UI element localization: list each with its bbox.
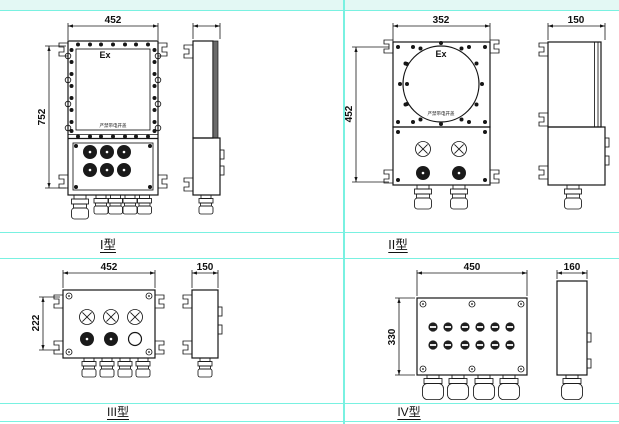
type1-buttons [83, 145, 131, 177]
type1-height-dimension: 752 [37, 46, 66, 188]
label-band-2: III型 IV型 [0, 403, 619, 422]
type4-height-value: 330 [387, 328, 398, 345]
type4-height-dimension: 330 [387, 298, 415, 375]
type3-depth-dimension: 150 [192, 262, 218, 288]
type1-ex-mark: Ex [99, 50, 110, 60]
type4-side-view: 160 [557, 262, 591, 400]
type1-drawing: 452 752 Ex 严禁带电开盖 [0, 10, 343, 232]
type2-side-view: 150 [539, 15, 609, 209]
type2-drawing: 352 452 Ex 严禁带电开盖 [343, 10, 619, 232]
type1-label: I型 [73, 233, 143, 258]
type4-cable-glands [423, 375, 520, 400]
type2-depth-dimension: 150 [548, 15, 605, 40]
type4-depth-value: 160 [564, 262, 581, 273]
type1-width-dimension: 452 [68, 15, 158, 40]
drawing-sheet: 452 752 Ex 严禁带电开盖 [0, 0, 619, 424]
type3-depth-value: 150 [197, 262, 214, 273]
type1-width-value: 452 [105, 15, 122, 26]
type2-height-dimension: 452 [344, 47, 389, 182]
type3-side-view: 150 [183, 262, 222, 377]
type4-depth-dimension: 160 [557, 262, 587, 279]
type1-height-value: 752 [37, 108, 48, 125]
type1-cable-glands [72, 195, 152, 219]
type2-depth-value: 150 [568, 15, 585, 26]
type2-cable-glands [415, 185, 468, 209]
type2-buttons [416, 166, 466, 180]
type2-panel-bolts [396, 130, 487, 182]
type2-width-value: 352 [433, 15, 450, 26]
type2-width-dimension: 352 [393, 15, 490, 40]
type4-width-dimension: 450 [417, 262, 527, 296]
type3-label: III型 [83, 404, 153, 420]
type3-cable-glands [82, 358, 150, 377]
type4-width-value: 450 [464, 262, 481, 273]
type1-side-view [184, 23, 224, 214]
type3-width-dimension: 452 [63, 262, 155, 288]
type2-warning-label: 严禁带电开盖 [428, 110, 455, 117]
type4-front-view [417, 298, 527, 400]
type2-ex-mark: Ex [435, 49, 446, 59]
type2-height-value: 452 [344, 105, 355, 122]
type3-width-value: 452 [101, 262, 118, 273]
label-band-1: I型 II型 [0, 232, 619, 259]
type3-drawing: 452 222 150 [0, 257, 343, 403]
type3-front-view [54, 290, 164, 377]
type2-lamps [416, 142, 467, 157]
type2-label: II型 [363, 233, 433, 258]
type2-front-view: Ex 严禁带电开盖 [384, 40, 499, 209]
type3-lamps [80, 310, 143, 325]
type4-drawing: 450 330 160 [343, 257, 619, 403]
vertical-divider [343, 0, 345, 424]
type3-height-value: 222 [31, 314, 42, 331]
type4-terminal-screws [428, 322, 514, 349]
type1-front-view: Ex 严禁带电开盖 [59, 41, 167, 219]
type4-label: IV型 [374, 404, 444, 420]
type3-buttons [80, 332, 142, 346]
type1-warning-label: 严禁带电开盖 [100, 122, 127, 129]
type3-height-dimension: 222 [31, 297, 60, 350]
